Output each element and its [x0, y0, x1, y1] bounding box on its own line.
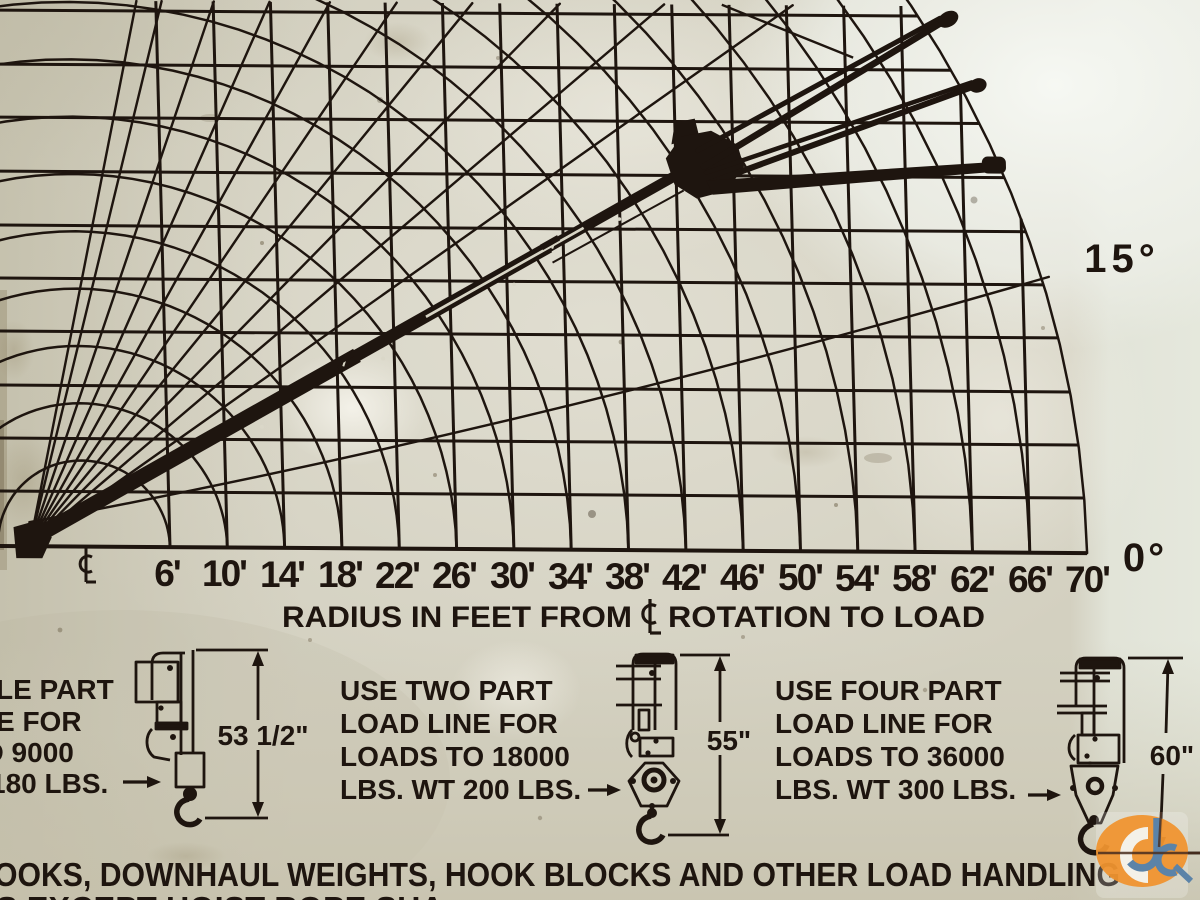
svg-text:62': 62': [950, 559, 994, 600]
svg-text:O 9000: O 9000: [0, 737, 74, 768]
svg-text:42': 42': [662, 557, 706, 598]
svg-text:46': 46': [720, 557, 764, 598]
svg-text:OOKS, DOWNHAUL WEIGHTS, HOOK B: OOKS, DOWNHAUL WEIGHTS, HOOK BLOCKS AND …: [0, 856, 1120, 893]
svg-text:30': 30': [490, 555, 534, 596]
svg-text:LBS. WT 300 LBS.: LBS. WT 300 LBS.: [775, 774, 1016, 805]
svg-text:50': 50': [778, 557, 822, 598]
svg-text:18': 18': [318, 554, 362, 595]
svg-text:E FOR: E FOR: [0, 706, 82, 737]
svg-text:LBS. WT 200 LBS.: LBS. WT 200 LBS.: [340, 774, 581, 805]
svg-text:0°: 0°: [1123, 536, 1167, 580]
svg-text:RADIUS IN FEET FROM: RADIUS IN FEET FROM: [282, 601, 632, 634]
svg-text:38': 38': [605, 556, 649, 597]
svg-text:14': 14': [260, 554, 304, 595]
svg-text:LOAD LINE FOR: LOAD LINE FOR: [340, 708, 558, 739]
svg-text:15°: 15°: [1084, 237, 1160, 281]
svg-text:LOAD LINE FOR: LOAD LINE FOR: [775, 708, 993, 739]
svg-text:26': 26': [432, 555, 476, 596]
svg-text:LE PART: LE PART: [0, 674, 114, 705]
svg-text:66': 66': [1008, 559, 1052, 600]
svg-text:LOADS TO 36000: LOADS TO 36000: [775, 741, 1005, 772]
svg-text:6': 6': [154, 553, 180, 594]
svg-text:USE FOUR PART: USE FOUR PART: [775, 675, 1002, 706]
svg-text:60": 60": [1150, 740, 1194, 771]
svg-text:10': 10': [202, 553, 246, 594]
svg-text:34': 34': [548, 556, 592, 597]
svg-text:ROTATION TO LOAD: ROTATION TO LOAD: [668, 601, 985, 634]
svg-text:LOADS TO 18000: LOADS TO 18000: [340, 741, 570, 772]
svg-text:58': 58': [892, 558, 936, 599]
svg-text:70': 70': [1065, 559, 1109, 600]
svg-text:USE TWO PART: USE TWO PART: [340, 675, 553, 706]
svg-text:54': 54': [835, 558, 879, 599]
svg-text:53 1/2": 53 1/2": [217, 720, 308, 751]
svg-text:180 LBS.: 180 LBS.: [0, 768, 108, 799]
svg-text:55": 55": [707, 725, 751, 756]
svg-text:22': 22': [375, 555, 419, 596]
svg-text:S EXCEPT HOIST ROPE SHA: S EXCEPT HOIST ROPE SHA: [0, 890, 444, 900]
